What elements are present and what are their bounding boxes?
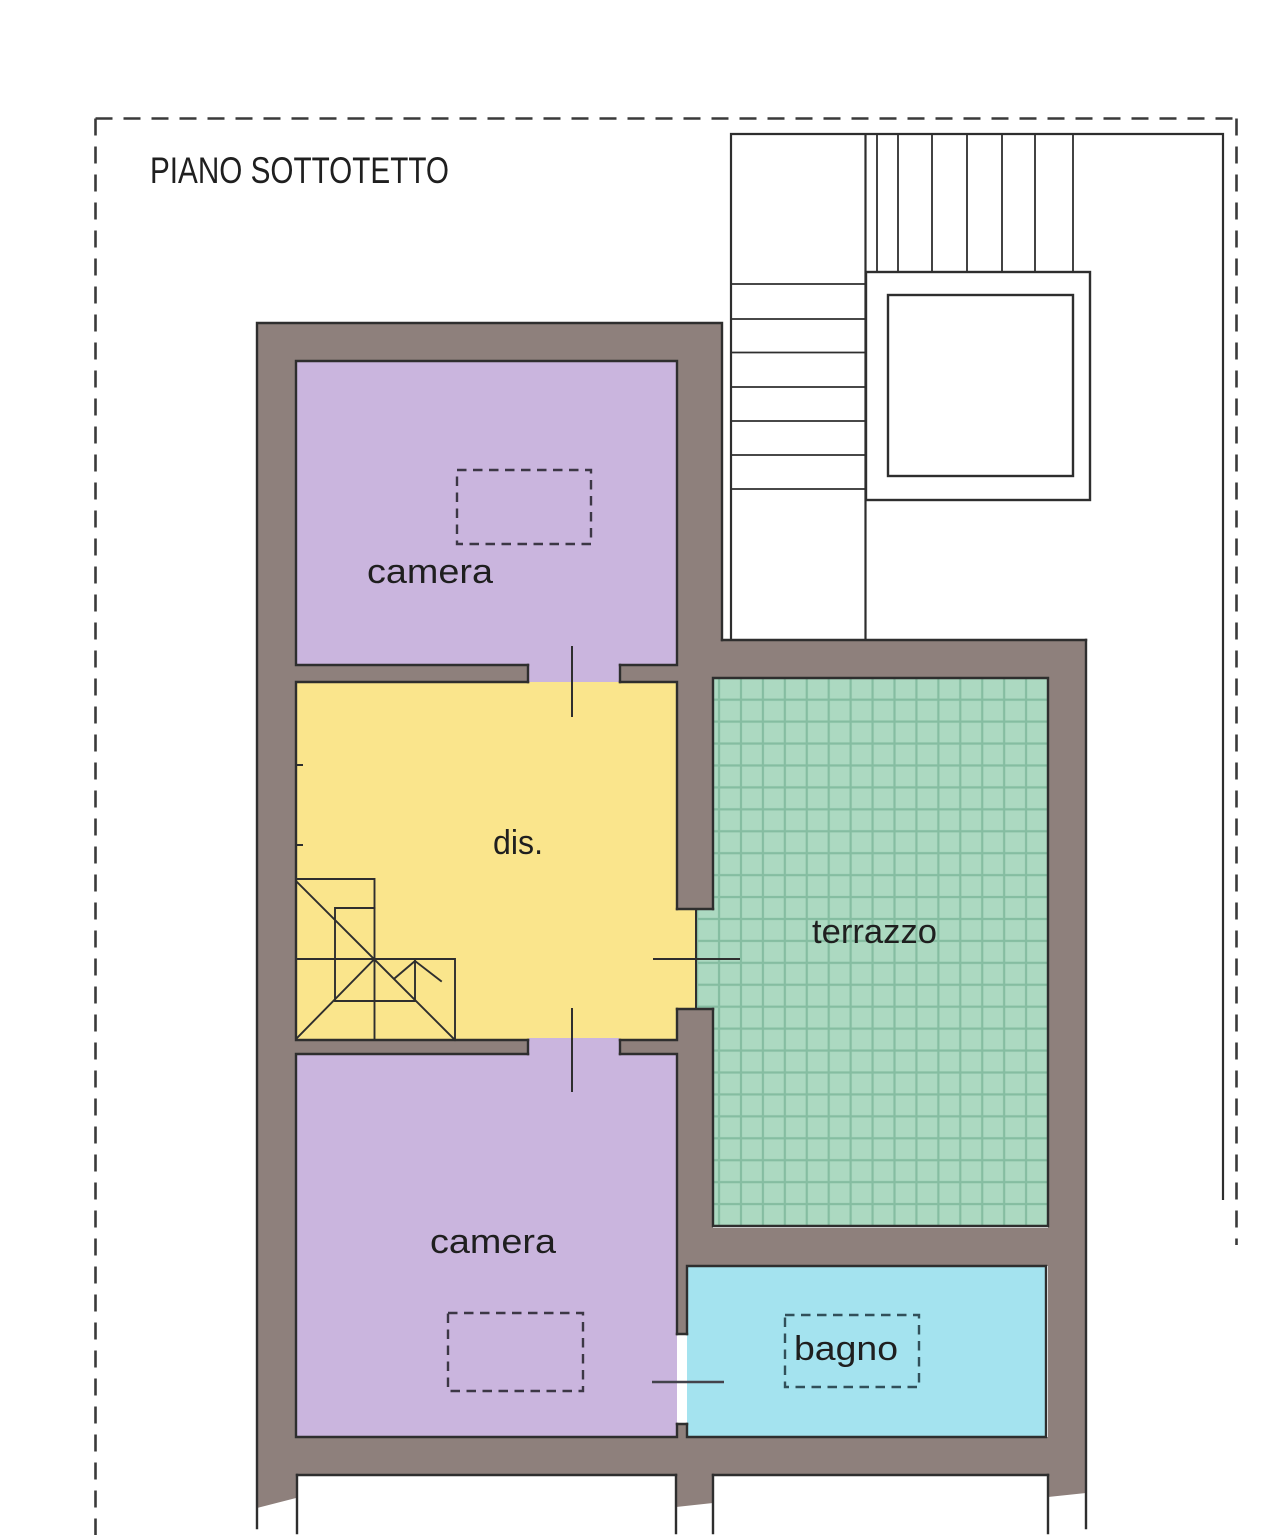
svg-text:camera: camera <box>430 1223 556 1261</box>
svg-text:terrazzo: terrazzo <box>812 913 937 951</box>
svg-text:dis.: dis. <box>493 824 543 862</box>
svg-text:bagno: bagno <box>794 1330 898 1368</box>
svg-text:PIANO SOTTOTETTO: PIANO SOTTOTETTO <box>150 150 449 191</box>
svg-text:camera: camera <box>367 553 493 591</box>
